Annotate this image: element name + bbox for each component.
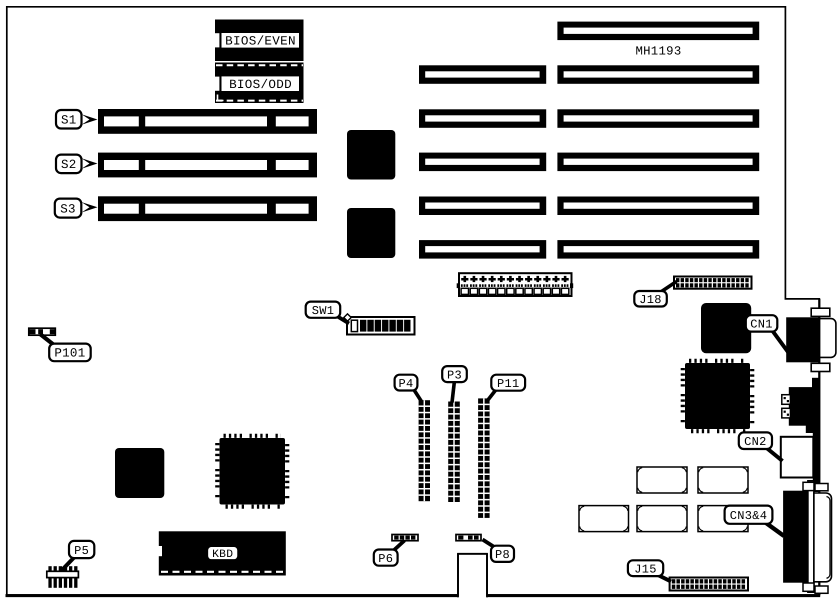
svg-text:P3: P3 [447,368,462,382]
svg-text:S2: S2 [61,158,77,172]
svg-text:BIOS/EVEN: BIOS/EVEN [225,35,296,49]
svg-text:P5: P5 [74,544,89,558]
svg-text:SW1: SW1 [312,304,335,318]
svg-text:P4: P4 [398,377,413,391]
svg-text:KBD: KBD [212,549,233,561]
svg-text:CN2: CN2 [744,435,767,449]
svg-text:MH1193: MH1193 [635,45,681,59]
svg-text:CN1: CN1 [750,318,773,332]
svg-text:P101: P101 [54,347,85,361]
svg-text:S3: S3 [60,202,76,216]
svg-text:S1: S1 [61,114,77,128]
svg-text:J18: J18 [639,293,662,307]
svg-text:P11: P11 [497,377,520,391]
svg-text:BIOS/ODD: BIOS/ODD [229,78,292,92]
svg-text:CN3&4: CN3&4 [730,509,768,523]
svg-text:J15: J15 [634,563,657,577]
svg-text:P6: P6 [378,552,393,566]
svg-text:P8: P8 [495,548,510,562]
